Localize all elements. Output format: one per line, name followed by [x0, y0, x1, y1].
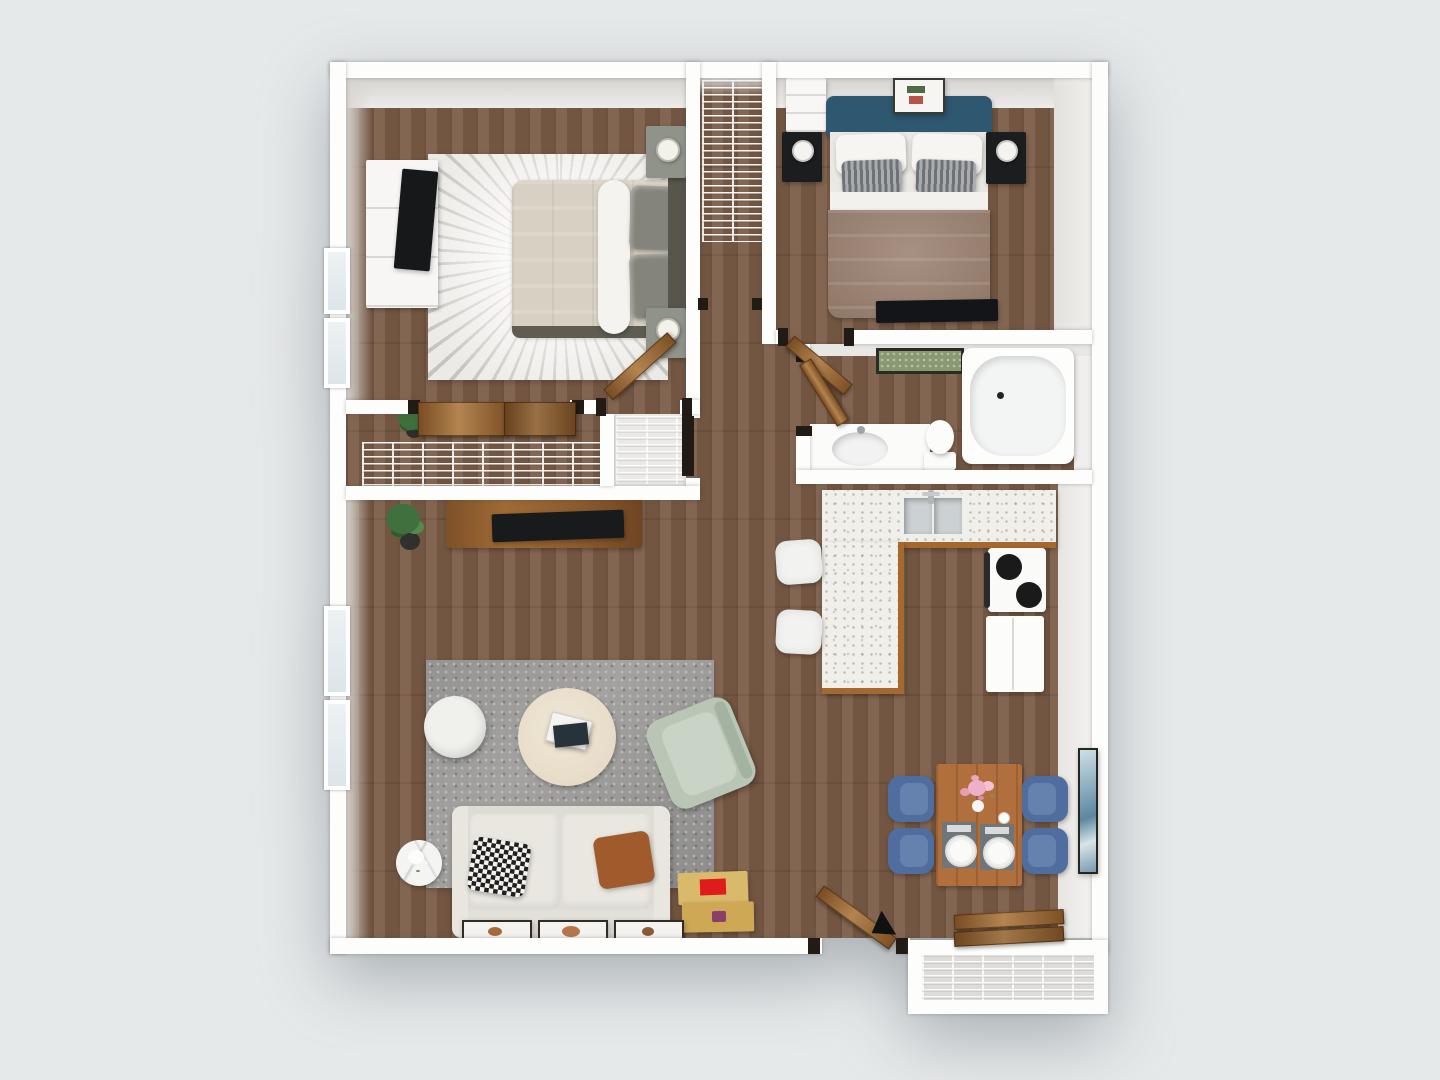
side-table-marble — [396, 840, 442, 886]
bedroom2-dresser — [786, 78, 826, 132]
sofa-arm-right — [654, 806, 670, 938]
chair-1-seat — [900, 783, 928, 815]
bedroom2-art-motif-green — [907, 86, 925, 93]
dining-chair-2 — [888, 828, 934, 874]
toilet — [920, 420, 960, 472]
storage-box-red-label — [700, 879, 727, 896]
dining-flowers — [968, 780, 986, 796]
frame-1-motif — [488, 927, 502, 936]
bedroom2-lamp-right — [996, 140, 1018, 162]
vanity-sink-basin — [832, 432, 888, 466]
dining-chair-3 — [1022, 776, 1068, 822]
placemat-2 — [980, 824, 1014, 870]
hall-closet-open-door — [682, 416, 694, 476]
bathtub-basin — [970, 356, 1066, 456]
vanity-faucet — [857, 426, 865, 434]
window-bedroom1-lower-pane — [328, 322, 346, 384]
apartment-floorplan — [0, 0, 1440, 1080]
window-living-lower — [324, 700, 350, 790]
window-living-upper-pane — [328, 610, 346, 692]
window-bedroom1-lower — [324, 318, 350, 388]
placemat-1 — [942, 822, 976, 868]
coffee-cup — [998, 812, 1010, 824]
chair-2-seat — [900, 835, 928, 867]
sofa-pillow-rust — [592, 830, 655, 890]
toilet-bowl — [926, 420, 954, 454]
sink-faucet-bar — [922, 492, 940, 496]
jamb-bathroom-bottom — [796, 426, 812, 436]
bedroom2-lamp-left — [792, 140, 814, 162]
sofa — [452, 806, 670, 938]
plant-living-leaves — [386, 504, 420, 534]
toilet-tank — [924, 452, 956, 470]
dining-wall-art — [1078, 748, 1098, 874]
refrigerator-seam — [1012, 618, 1014, 690]
kitchen-refrigerator — [986, 616, 1044, 692]
jamb-entry-left — [808, 938, 820, 954]
wardrobe-wire-shelving — [362, 442, 602, 486]
kitchen-peninsula — [822, 542, 904, 694]
window-bedroom1-upper-pane — [328, 252, 346, 310]
wall-exterior-left — [330, 62, 346, 954]
bathtub — [962, 348, 1074, 464]
wall-closet-row-bottom — [346, 486, 700, 500]
bedroom2-art-motif-red — [909, 96, 923, 104]
bedroom2-bed — [826, 96, 992, 324]
placemat-2-napkin — [985, 827, 1009, 834]
placemat-1-plate — [945, 835, 977, 867]
window-living-upper — [324, 606, 350, 696]
frame-2-motif — [562, 926, 580, 937]
storage-box-sticker — [712, 911, 726, 922]
storage-wire-shelving — [922, 954, 1094, 1000]
wall-exterior-top — [330, 62, 1108, 78]
wall-bedroom1-closet-vertical — [686, 62, 700, 418]
bed2-pillow-accent-left — [841, 159, 902, 195]
bathtub-drain — [997, 392, 1004, 399]
frame-3-motif — [642, 927, 654, 936]
kitchen-sink — [900, 494, 966, 538]
bath-mat-frame — [876, 348, 964, 374]
bed2-pillow-accent-right — [915, 159, 976, 195]
wall-closet-divider — [600, 414, 614, 486]
wall-exterior-bottom-left — [330, 938, 822, 954]
storage-box-bottom — [682, 901, 755, 932]
console-tv — [492, 510, 625, 543]
wardrobe-sliding-door-right — [504, 402, 576, 436]
sofa-arm-left — [452, 806, 468, 938]
bedroom2-wall-art — [893, 78, 945, 114]
chair-4-seat — [1028, 835, 1056, 867]
window-living-lower-pane — [328, 704, 346, 786]
dining-flower-vase — [972, 800, 984, 812]
jamb-entry-right — [896, 938, 908, 954]
jamb-bedroom1-left — [596, 398, 606, 416]
storage-box-top — [677, 871, 748, 905]
coffee-table-book-2 — [553, 722, 589, 747]
stove-burner-1 — [996, 554, 1022, 580]
pouf — [424, 696, 486, 758]
bar-stool-1 — [775, 538, 824, 585]
dining-art-abstract — [1080, 750, 1096, 872]
bath-mat-green — [879, 351, 961, 371]
side-table-flowers — [408, 850, 424, 864]
wall-bathroom-bottom — [796, 470, 1092, 484]
bathroom-vanity — [810, 424, 930, 470]
window-bedroom1-upper — [324, 248, 350, 314]
closet-wire-shelving — [702, 80, 762, 242]
jamb-bedroom1-right — [682, 398, 692, 416]
plant-living — [384, 504, 434, 558]
dining-chair-4 — [1022, 828, 1068, 874]
placemat-1-napkin — [947, 825, 971, 832]
bar-stool-2 — [775, 609, 823, 655]
chair-3-seat — [1028, 783, 1056, 815]
wall-closet-bedroom2-vertical — [762, 62, 776, 344]
hall-closet-wire-shelving — [616, 416, 684, 484]
sink-basin-right — [934, 498, 962, 534]
coffee-table — [518, 688, 616, 786]
jamb-bedroom2-right — [844, 328, 854, 346]
wardrobe-sliding-door-left — [418, 402, 508, 436]
dining-chair-1 — [888, 776, 934, 822]
stove-burner-2 — [1016, 582, 1042, 608]
bed1-body-pillow — [598, 180, 630, 334]
bedroom1-lamp-top — [656, 138, 680, 162]
sofa-pillow-houndstooth — [466, 836, 532, 898]
stove-handle — [984, 552, 990, 608]
placemat-2-plate — [983, 837, 1015, 869]
floorplan-canvas — [0, 0, 1440, 1080]
plant-living-pot — [400, 532, 420, 550]
wall-bedroom2-bottom — [844, 330, 1092, 344]
bedroom2-tv-slab — [876, 299, 998, 323]
kitchen-stove — [988, 548, 1046, 612]
jamb-closet-right — [752, 298, 762, 310]
jamb-closet-left — [698, 298, 708, 310]
